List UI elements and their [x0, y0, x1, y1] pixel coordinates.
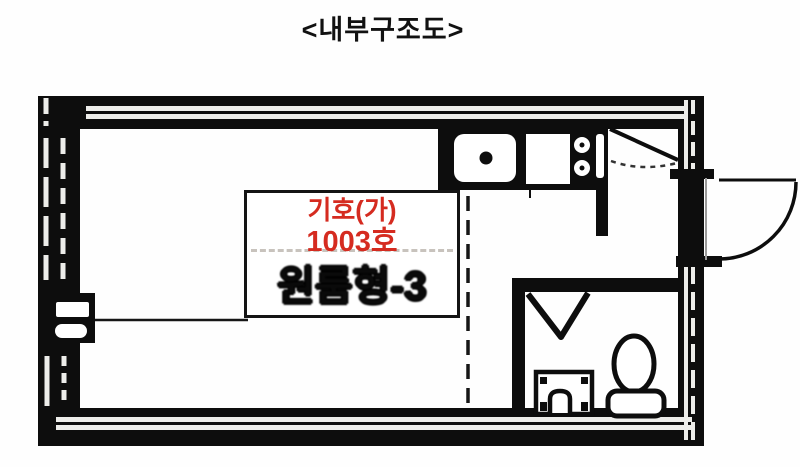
toilet-icon [608, 336, 664, 416]
bathroom [512, 278, 678, 416]
bathroom-door-swing-icon [528, 293, 588, 337]
washbasin-icon [536, 372, 592, 414]
unit-label-box: 기호(가) 1003호 원룸형-3 [244, 190, 460, 318]
kitchen-sink-icon [454, 134, 516, 182]
counter-top-icon [526, 134, 570, 184]
kitchen-counter [438, 128, 608, 236]
unit-type-label: 원룸형-3 [247, 262, 457, 310]
floor-plan-page: <내부구조도> [0, 0, 800, 467]
room-number-label: 1003호 [247, 226, 457, 259]
entrance-door-swing-icon [610, 129, 678, 167]
ac-unit-icon [40, 282, 95, 354]
unit-symbol-label: 기호(가) [247, 195, 457, 226]
